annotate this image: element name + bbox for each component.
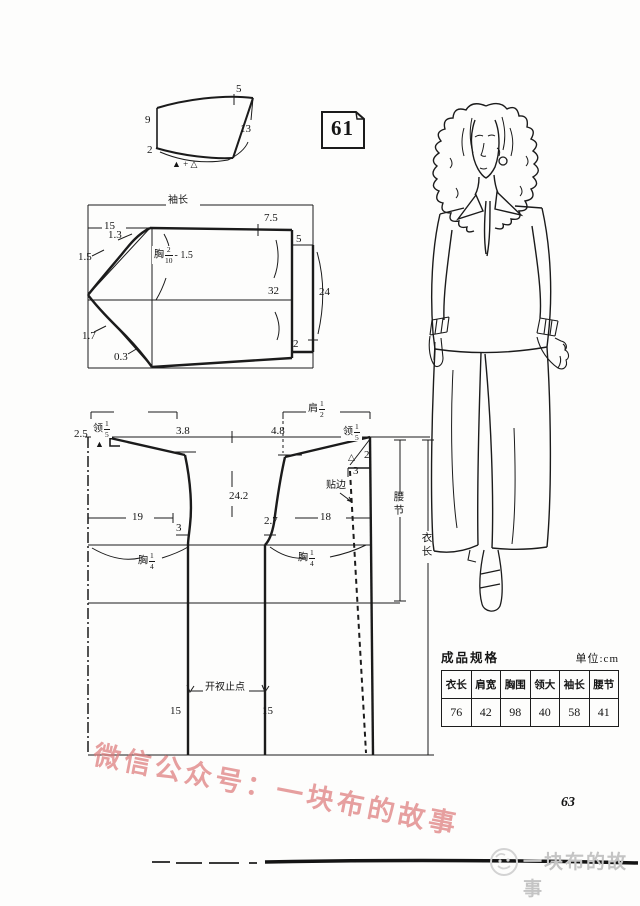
spec-header-row: 衣长 肩宽 胸围 领大 袖长 腰节	[442, 671, 619, 699]
back-width-dim: 19	[130, 512, 145, 523]
spec-table-title: 成品规格	[441, 647, 499, 666]
front-shoulder-slope-dim: 4.8	[271, 426, 285, 437]
front-neck-fifth-label: 领15	[341, 423, 362, 441]
tunic-right	[542, 208, 551, 347]
brand-logo-icon	[486, 844, 522, 880]
shoulder-half-label: 肩12	[306, 400, 327, 418]
tunic-hem	[435, 347, 547, 353]
spec-val-bust: 98	[501, 699, 531, 727]
sleeve-cuff-top-dim: 7.5	[264, 213, 278, 224]
sleeve-cuff-bottom-dim: 2	[293, 339, 299, 350]
shoe	[480, 550, 502, 611]
slit-end-label: 开衩止点	[203, 683, 247, 693]
back-shoulder-slope-dim: 3.8	[176, 426, 190, 437]
pants-right-inner	[485, 354, 493, 548]
spec-col-sleeve: 袖长	[560, 671, 590, 699]
brand-text: 一块布的故事	[523, 847, 640, 901]
facing-label: 贴边	[324, 481, 348, 491]
front-chest-quarter-label: 胸14	[298, 549, 315, 567]
spec-col-length: 衣长	[442, 671, 472, 699]
sleeve-cuff-depth-dim: 24	[319, 287, 330, 298]
collar-left	[458, 195, 483, 219]
collar-top-dim: 5	[236, 84, 242, 95]
back-gap-dim: 3	[176, 523, 182, 534]
spec-col-neck: 领大	[530, 671, 560, 699]
sleeve-cap-height-formula: 胸210- 1.5	[152, 246, 195, 264]
spec-table-header: 成品规格 单位:cm	[441, 647, 619, 666]
pants-left-outer	[432, 349, 435, 551]
spec-table: 成品规格 单位:cm 衣长 肩宽 胸围 领大 袖长 腰节 76 42 98 40…	[441, 647, 619, 727]
page-number: 63	[561, 795, 575, 811]
collar-right-dim: 13	[240, 124, 251, 135]
spec-val-length: 76	[442, 699, 472, 727]
back-neck-rise-dim: 2.5	[74, 429, 88, 440]
spec-col-waist: 腰节	[589, 671, 619, 699]
collar-bottom-dim: 2	[147, 145, 153, 156]
spec-val-sleeve: 58	[560, 699, 590, 727]
spec-col-bust: 胸围	[501, 671, 531, 699]
collar-fold-note: ▲ + △	[172, 160, 197, 169]
sleeve-offset-03-dim: 0.3	[114, 352, 128, 363]
front-width-dim: 18	[318, 512, 333, 523]
slit-left-dim: 15	[170, 706, 181, 717]
spec-table-unit: 单位:cm	[576, 650, 620, 666]
back-grain-marker: ▲	[95, 440, 104, 449]
hand-right	[537, 337, 569, 369]
spec-val-shoulder: 42	[471, 699, 501, 727]
earring	[499, 157, 507, 165]
spec-val-neck: 40	[530, 699, 560, 727]
scanned-pattern-page: 5 9 13 2 ▲ + △ 61	[0, 0, 640, 906]
slit-right-dim: 15	[262, 706, 273, 717]
spec-value-row: 76 42 98 40 58 41	[442, 699, 619, 727]
front-gap-dim: 2.7	[264, 516, 278, 527]
cuff-right	[537, 318, 558, 336]
spec-col-shoulder: 肩宽	[471, 671, 501, 699]
back-neck-fifth-label: 领15	[91, 420, 112, 438]
back-chest-quarter-label: 胸14	[138, 552, 155, 570]
collar-right	[495, 192, 521, 215]
sleeve-offset-17-dim: 1.7	[82, 331, 96, 342]
sleeve-length-label: 袖长	[166, 196, 190, 206]
pattern-number: 61	[331, 116, 354, 141]
spec-val-waist: 41	[589, 699, 619, 727]
collar-left-dim: 9	[145, 115, 151, 126]
sleeve-offset-15-dim: 1.5	[78, 252, 92, 263]
sleeve-offset-13-dim: 1.3	[108, 230, 122, 241]
sleeve-elbow-dim: 32	[266, 286, 281, 297]
v-slit	[485, 201, 491, 256]
pants-left-inner	[478, 353, 481, 545]
front-grain-marker: △	[348, 453, 355, 462]
waist-length-label: 腰节	[392, 491, 403, 518]
sleeve-placket-width-dim: 5	[296, 234, 302, 245]
fashion-figure-illustration	[420, 98, 615, 623]
pants-right-outer	[547, 347, 550, 547]
cross-width-dim: 24.2	[227, 491, 250, 502]
hand-left	[429, 336, 443, 367]
spec-grid: 衣长 肩宽 胸围 领大 袖长 腰节 76 42 98 40 58 41	[441, 670, 619, 727]
front-neck-drop-dim: 2	[364, 450, 370, 461]
bodice-pattern-drawing	[78, 393, 438, 773]
front-neck-width-dim: 3	[353, 466, 359, 477]
